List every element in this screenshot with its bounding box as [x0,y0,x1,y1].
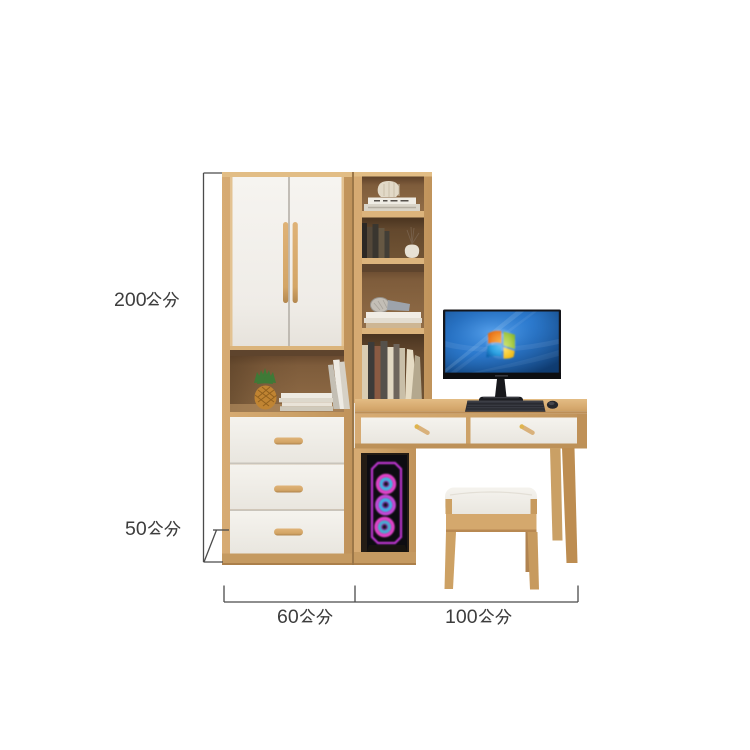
svg-text:60: 60 [277,606,299,628]
svg-text:100: 100 [445,606,478,628]
svg-text:50: 50 [125,518,147,540]
svg-text:200: 200 [114,289,147,311]
